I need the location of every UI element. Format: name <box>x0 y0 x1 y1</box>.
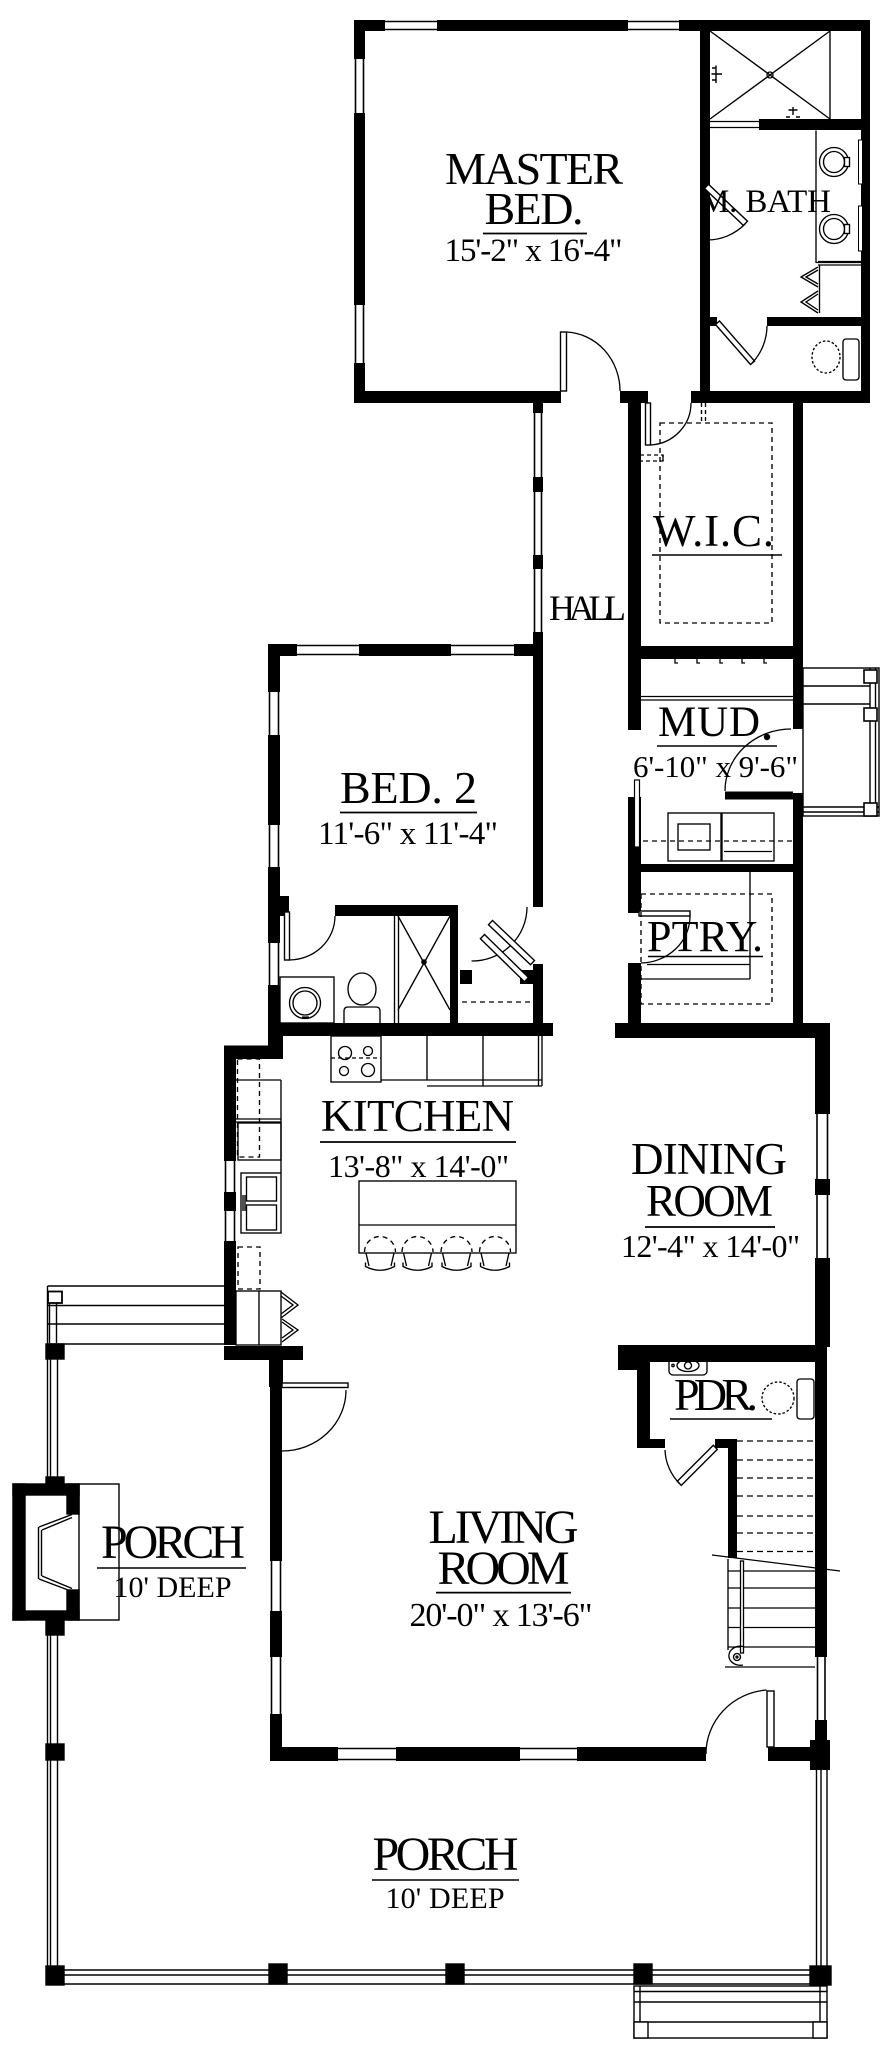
svg-text:15'-2" x 16'-4": 15'-2" x 16'-4" <box>445 233 623 269</box>
svg-text:BED. 2: BED. 2 <box>340 762 477 813</box>
svg-text:6'-10" x 9'-6": 6'-10" x 9'-6" <box>633 749 798 784</box>
svg-text:PDR.: PDR. <box>674 1369 758 1420</box>
svg-text:KITCHEN: KITCHEN <box>321 1091 514 1141</box>
svg-text:ROOM: ROOM <box>646 1176 773 1226</box>
svg-text:PTRY.: PTRY. <box>647 912 763 961</box>
svg-text:BED.: BED. <box>485 183 584 234</box>
svg-text:M. BATH: M. BATH <box>700 184 831 220</box>
svg-text:ROOM: ROOM <box>438 1542 570 1595</box>
svg-text:10' DEEP: 10' DEEP <box>114 1571 232 1604</box>
svg-text:MUD: MUD <box>658 699 760 746</box>
svg-text:PORCH: PORCH <box>101 1516 245 1569</box>
svg-text:20'-0" x 13'-6": 20'-0" x 13'-6" <box>410 1597 593 1634</box>
svg-text:12'-4" x 14'-0": 12'-4" x 14'-0" <box>621 1228 800 1264</box>
svg-text:W.I.C.: W.I.C. <box>653 506 774 556</box>
svg-text:HALL: HALL <box>549 588 626 628</box>
svg-text:13'-8" x 14'-0": 13'-8" x 14'-0" <box>328 1148 509 1184</box>
svg-text:10' DEEP: 10' DEEP <box>386 1882 505 1915</box>
svg-text:11'-6" x 11'-4": 11'-6" x 11'-4" <box>318 816 498 852</box>
svg-text:PORCH: PORCH <box>373 1828 519 1881</box>
